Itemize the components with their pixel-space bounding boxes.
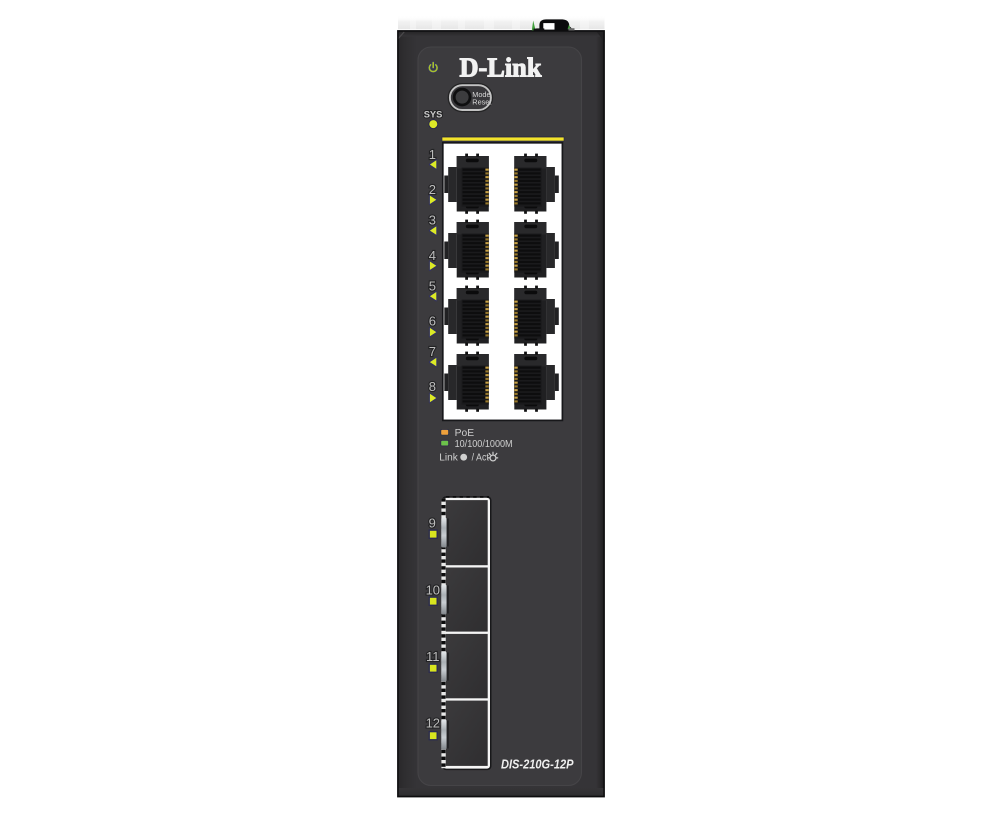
- svg-text:11: 11: [426, 649, 440, 664]
- svg-text:D-Link: D-Link: [460, 53, 542, 83]
- svg-text:/ Act: / Act: [472, 452, 489, 463]
- svg-text:PoE: PoE: [455, 428, 475, 439]
- svg-text:5: 5: [429, 278, 436, 293]
- svg-text:6: 6: [429, 314, 436, 329]
- svg-text:8: 8: [429, 379, 436, 394]
- svg-text:Reset: Reset: [472, 98, 491, 107]
- svg-text:9: 9: [429, 515, 436, 530]
- svg-text:10: 10: [426, 583, 440, 598]
- svg-text:Link: Link: [439, 452, 458, 463]
- svg-text:7: 7: [429, 344, 436, 359]
- svg-text:10/100/1000M: 10/100/1000M: [455, 439, 513, 450]
- svg-text:DIS-210G-12P: DIS-210G-12P: [501, 758, 574, 772]
- svg-text:SYS: SYS: [424, 109, 443, 119]
- svg-text:3: 3: [429, 212, 436, 227]
- svg-text:12: 12: [426, 715, 440, 730]
